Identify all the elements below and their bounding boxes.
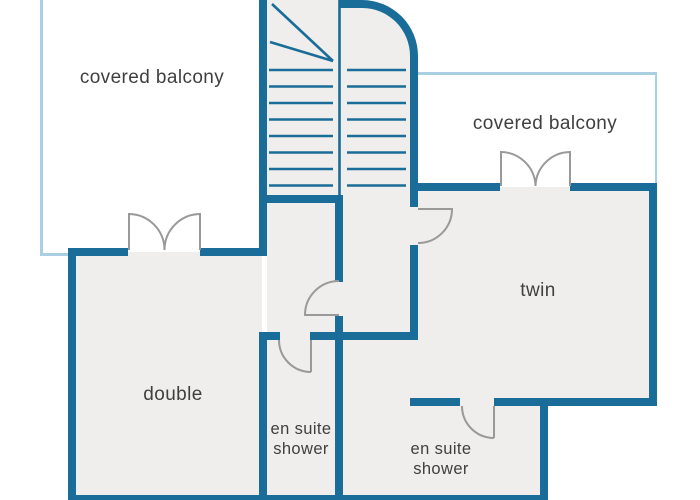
french-door-icon-balcony-right [501, 152, 570, 186]
label-twin-room: twin [520, 280, 555, 302]
label-balcony-left: covered balcony [80, 67, 224, 89]
staircase [269, 0, 406, 200]
stair-treads-right [347, 70, 406, 186]
door-arc-icon-ensuite-right [462, 406, 494, 438]
label-ensuite-left: en suite shower [258, 419, 344, 459]
label-balcony-right: covered balcony [473, 113, 617, 135]
label-double-room: double [143, 384, 202, 406]
french-door-icon-balcony-left [129, 214, 200, 250]
floor-plan: covered balcony covered balcony double t… [0, 0, 700, 500]
label-ensuite-right: en suite shower [398, 439, 484, 479]
door-arc-icon-hall [305, 281, 339, 315]
door-arc-icon-twin-entry [418, 209, 452, 243]
door-arc-icon-ensuite-left [279, 340, 311, 372]
stair-treads-left [269, 70, 333, 186]
